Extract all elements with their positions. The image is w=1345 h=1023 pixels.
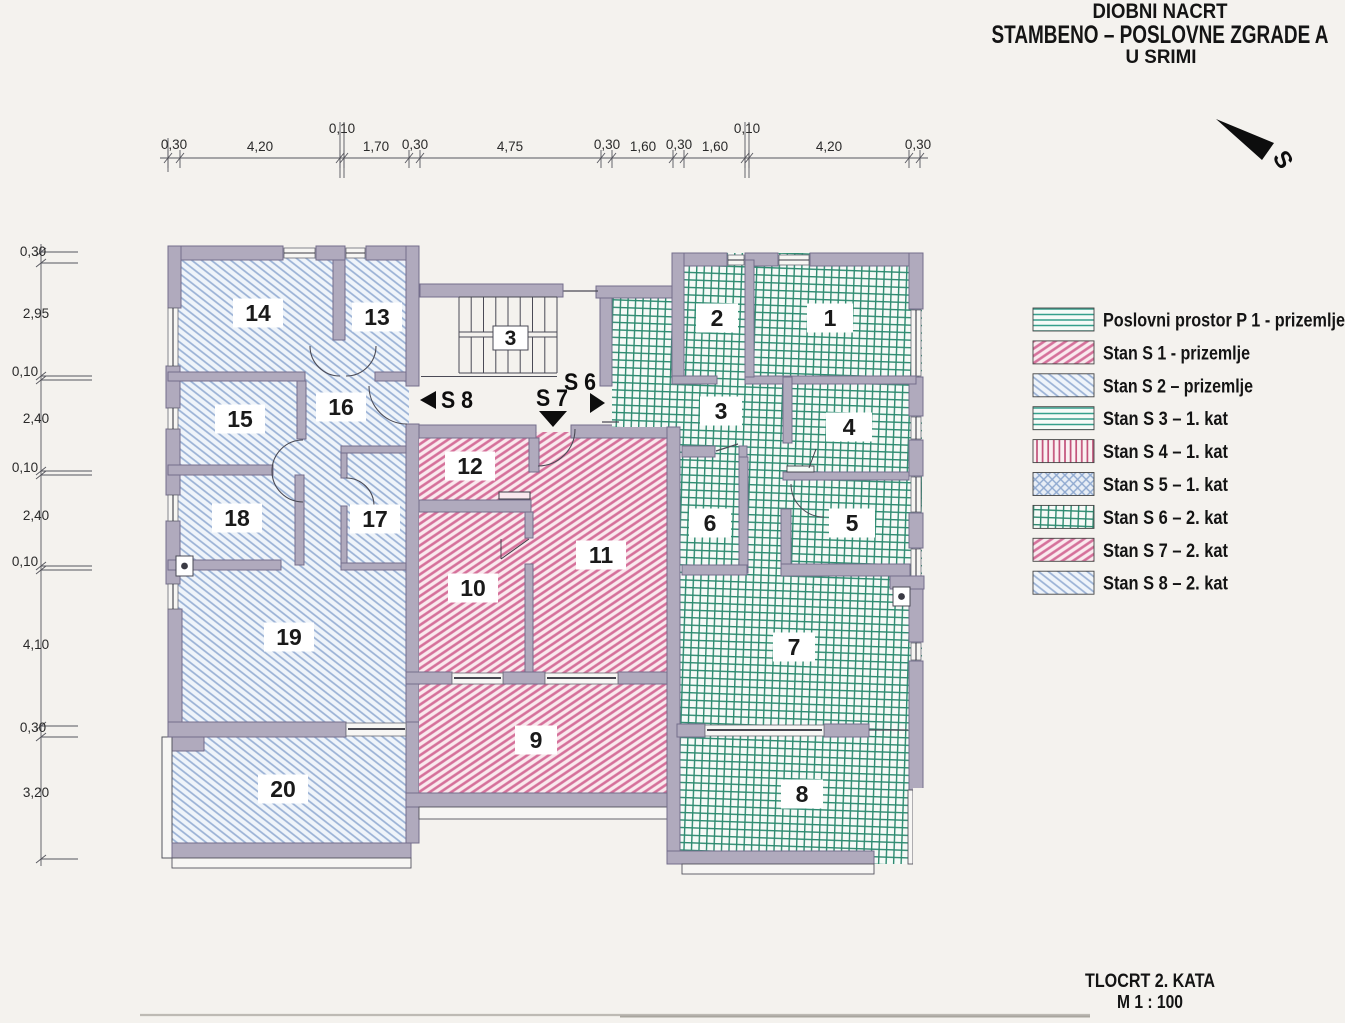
svg-text:17: 17 (362, 506, 388, 532)
svg-text:U SRIMI: U SRIMI (1126, 47, 1197, 68)
svg-text:S 6: S 6 (564, 369, 596, 396)
svg-text:Stan S 5 – 1. kat: Stan S 5 – 1. kat (1103, 475, 1229, 496)
svg-text:4: 4 (843, 414, 856, 440)
svg-text:0,10: 0,10 (12, 364, 38, 379)
svg-text:20: 20 (270, 776, 296, 802)
svg-text:Stan S 3 – 1. kat: Stan S 3 – 1. kat (1103, 409, 1229, 430)
svg-text:DIOBNI NACRT: DIOBNI NACRT (1093, 0, 1228, 23)
svg-text:Stan S 8 – 2. kat: Stan S 8 – 2. kat (1103, 574, 1229, 595)
svg-text:STAMBENO – POSLOVNE ZGRADE A: STAMBENO – POSLOVNE ZGRADE A (992, 21, 1329, 49)
svg-text:1,60: 1,60 (630, 139, 656, 154)
svg-text:0,30: 0,30 (161, 137, 187, 152)
svg-text:2,95: 2,95 (23, 306, 49, 321)
svg-text:0,30: 0,30 (905, 137, 931, 152)
svg-text:0,10: 0,10 (734, 121, 760, 136)
svg-text:10: 10 (460, 575, 486, 601)
svg-text:Stan S 4 – 1. kat: Stan S 4 – 1. kat (1103, 442, 1229, 463)
svg-text:Stan S 2 – prizemlje: Stan S 2 – prizemlje (1103, 376, 1253, 397)
svg-text:Stan S 1 - prizemlje: Stan S 1 - prizemlje (1103, 343, 1250, 364)
svg-text:2: 2 (711, 305, 724, 331)
svg-text:15: 15 (227, 406, 253, 432)
svg-text:0,10: 0,10 (12, 460, 38, 475)
svg-text:9: 9 (530, 727, 543, 753)
svg-text:S 8: S 8 (441, 387, 473, 414)
svg-text:3: 3 (505, 327, 517, 350)
svg-text:4,75: 4,75 (497, 139, 523, 154)
svg-text:3,20: 3,20 (23, 785, 49, 800)
svg-text:0,10: 0,10 (329, 121, 355, 136)
svg-text:Stan S 6 – 2. kat: Stan S 6 – 2. kat (1103, 508, 1229, 529)
svg-text:4,10: 4,10 (23, 637, 49, 652)
svg-text:TLOCRT 2. KATA: TLOCRT 2. KATA (1085, 971, 1215, 992)
svg-text:1,60: 1,60 (702, 139, 728, 154)
svg-text:3: 3 (715, 398, 728, 424)
svg-text:1,70: 1,70 (363, 139, 389, 154)
svg-text:16: 16 (328, 394, 354, 420)
svg-text:19: 19 (276, 624, 302, 650)
svg-text:2,40: 2,40 (23, 508, 49, 523)
svg-text:M 1 : 100: M 1 : 100 (1117, 992, 1183, 1012)
svg-text:1: 1 (824, 305, 837, 331)
svg-text:0,10: 0,10 (12, 554, 38, 569)
svg-text:0,30: 0,30 (20, 244, 46, 259)
svg-text:0,30: 0,30 (666, 137, 692, 152)
svg-text:8: 8 (796, 781, 809, 807)
svg-text:2,40: 2,40 (23, 411, 49, 426)
svg-text:0,30: 0,30 (402, 137, 428, 152)
svg-text:4,20: 4,20 (247, 139, 273, 154)
svg-text:7: 7 (788, 634, 801, 660)
svg-text:14: 14 (245, 300, 271, 326)
svg-text:5: 5 (846, 510, 859, 536)
svg-text:Poslovni prostor P 1 - prizeml: Poslovni prostor P 1 - prizemlje (1103, 311, 1345, 332)
svg-text:6: 6 (704, 510, 717, 536)
svg-text:18: 18 (224, 505, 250, 531)
svg-text:Stan S 7 – 2. kat: Stan S 7 – 2. kat (1103, 541, 1229, 562)
svg-text:11: 11 (589, 542, 614, 568)
svg-text:0,30: 0,30 (594, 137, 620, 152)
svg-text:0,30: 0,30 (20, 720, 46, 735)
svg-text:13: 13 (364, 304, 390, 330)
svg-text:4,20: 4,20 (816, 139, 842, 154)
svg-text:12: 12 (457, 453, 483, 479)
